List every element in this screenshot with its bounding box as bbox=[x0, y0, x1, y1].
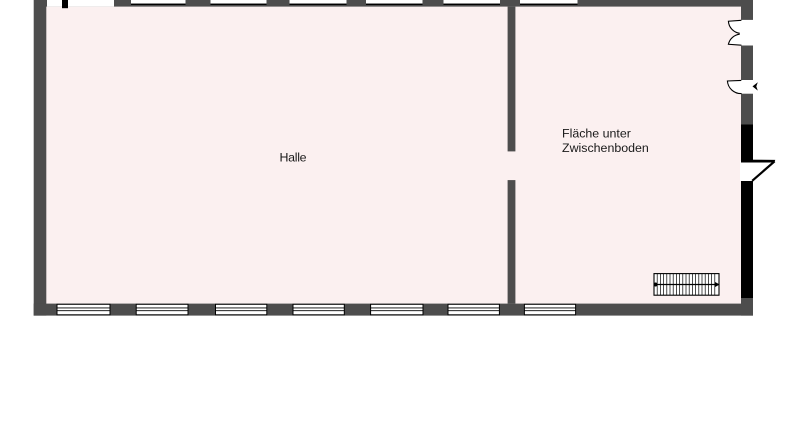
svg-text:Zwischenboden: Zwischenboden bbox=[562, 141, 649, 155]
svg-text:Halle: Halle bbox=[280, 151, 307, 165]
svg-text:Fläche unter: Fläche unter bbox=[562, 126, 631, 140]
